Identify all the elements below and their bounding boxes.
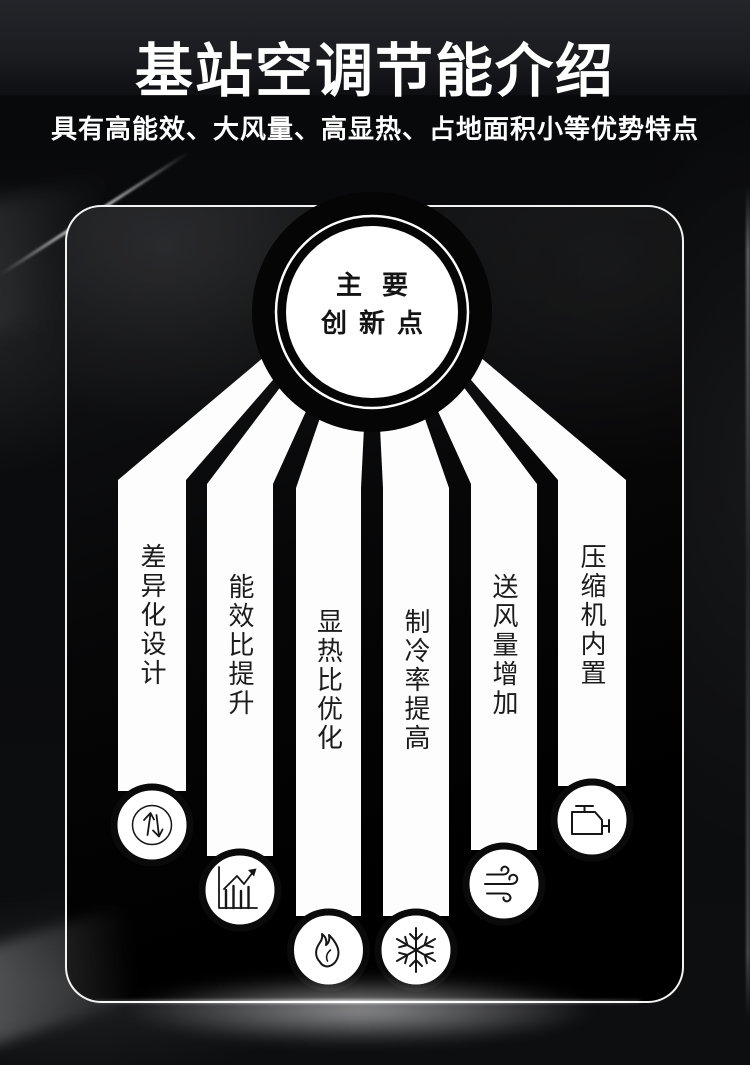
ribbon-label-3: 显热比优化 xyxy=(314,608,344,838)
badge-6 xyxy=(554,782,630,858)
ribbon-label-5: 送风量增加 xyxy=(489,573,519,803)
center-label-line2: 创新点 xyxy=(272,304,472,342)
bottom-glow-line xyxy=(95,1000,640,1003)
right-edge-streak xyxy=(746,185,750,1020)
ribbon-label-2: 能效比提升 xyxy=(225,573,255,803)
ribbon-label-4: 制冷率提高 xyxy=(401,608,431,838)
badge-1 xyxy=(114,787,190,863)
center-label-line1: 主要 xyxy=(272,266,472,304)
ribbon-label-6: 压缩机内置 xyxy=(577,543,607,773)
center-circle-label: 主要 创新点 xyxy=(272,266,472,342)
badge-3 xyxy=(291,912,367,988)
innovation-fan-diagram xyxy=(0,0,750,1065)
ribbon-label-1: 差异化设计 xyxy=(137,543,167,773)
poster-canvas: 基站空调节能介绍 具有高能效、大风量、高显热、占地面积小等优势特点 xyxy=(0,0,750,1065)
bottom-glow-halo xyxy=(110,978,630,1050)
